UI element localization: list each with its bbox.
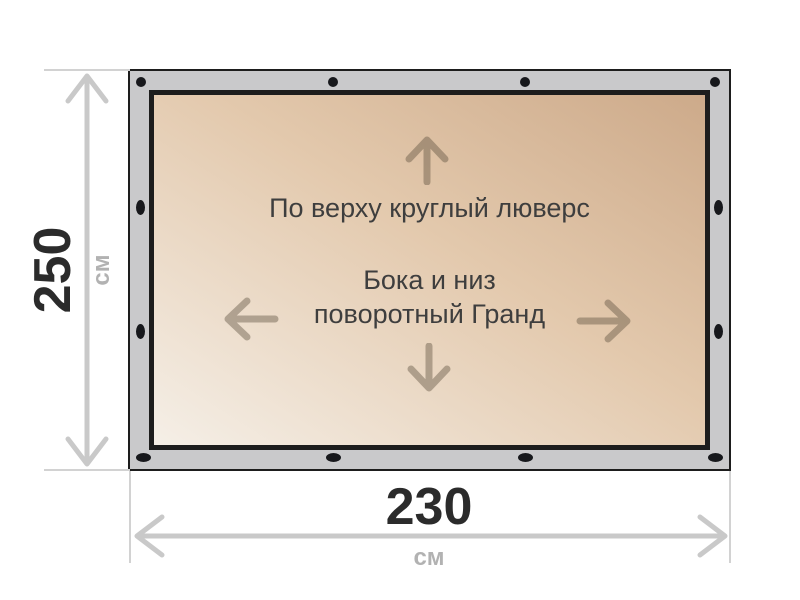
width-value: 230: [329, 481, 529, 533]
down-arrow-icon: [406, 343, 452, 393]
grommet-icon: [708, 453, 723, 462]
grommet-icon: [518, 453, 533, 462]
right-arrow-icon: [576, 298, 632, 344]
grommet-icon: [326, 453, 341, 462]
height-tick-top: [44, 69, 130, 71]
diagram-canvas: По верху круглый люверс Бока и низ повор…: [0, 0, 800, 600]
top-note: По верху круглый люверс: [154, 191, 705, 225]
grommet-icon: [710, 77, 720, 87]
grommet-icon: [136, 200, 145, 215]
tarp-panel: По верху круглый люверс Бока и низ повор…: [149, 90, 710, 450]
width-tick-left: [129, 471, 131, 563]
grommet-icon: [714, 324, 723, 339]
middle-note-line1: Бока и низ: [154, 263, 705, 297]
width-tick-right: [729, 471, 731, 563]
height-tick-bottom: [44, 469, 130, 471]
height-value: 250: [27, 210, 87, 330]
up-arrow-icon: [404, 135, 450, 185]
grommet-icon: [328, 77, 338, 87]
grommet-icon: [714, 200, 723, 215]
grommet-icon: [136, 324, 145, 339]
grommet-icon: [136, 453, 151, 462]
grommet-icon: [136, 77, 146, 87]
height-unit: см: [89, 240, 119, 300]
grommet-icon: [520, 77, 530, 87]
width-unit: см: [379, 545, 479, 571]
tarp-frame: По верху круглый люверс Бока и низ повор…: [128, 69, 731, 471]
